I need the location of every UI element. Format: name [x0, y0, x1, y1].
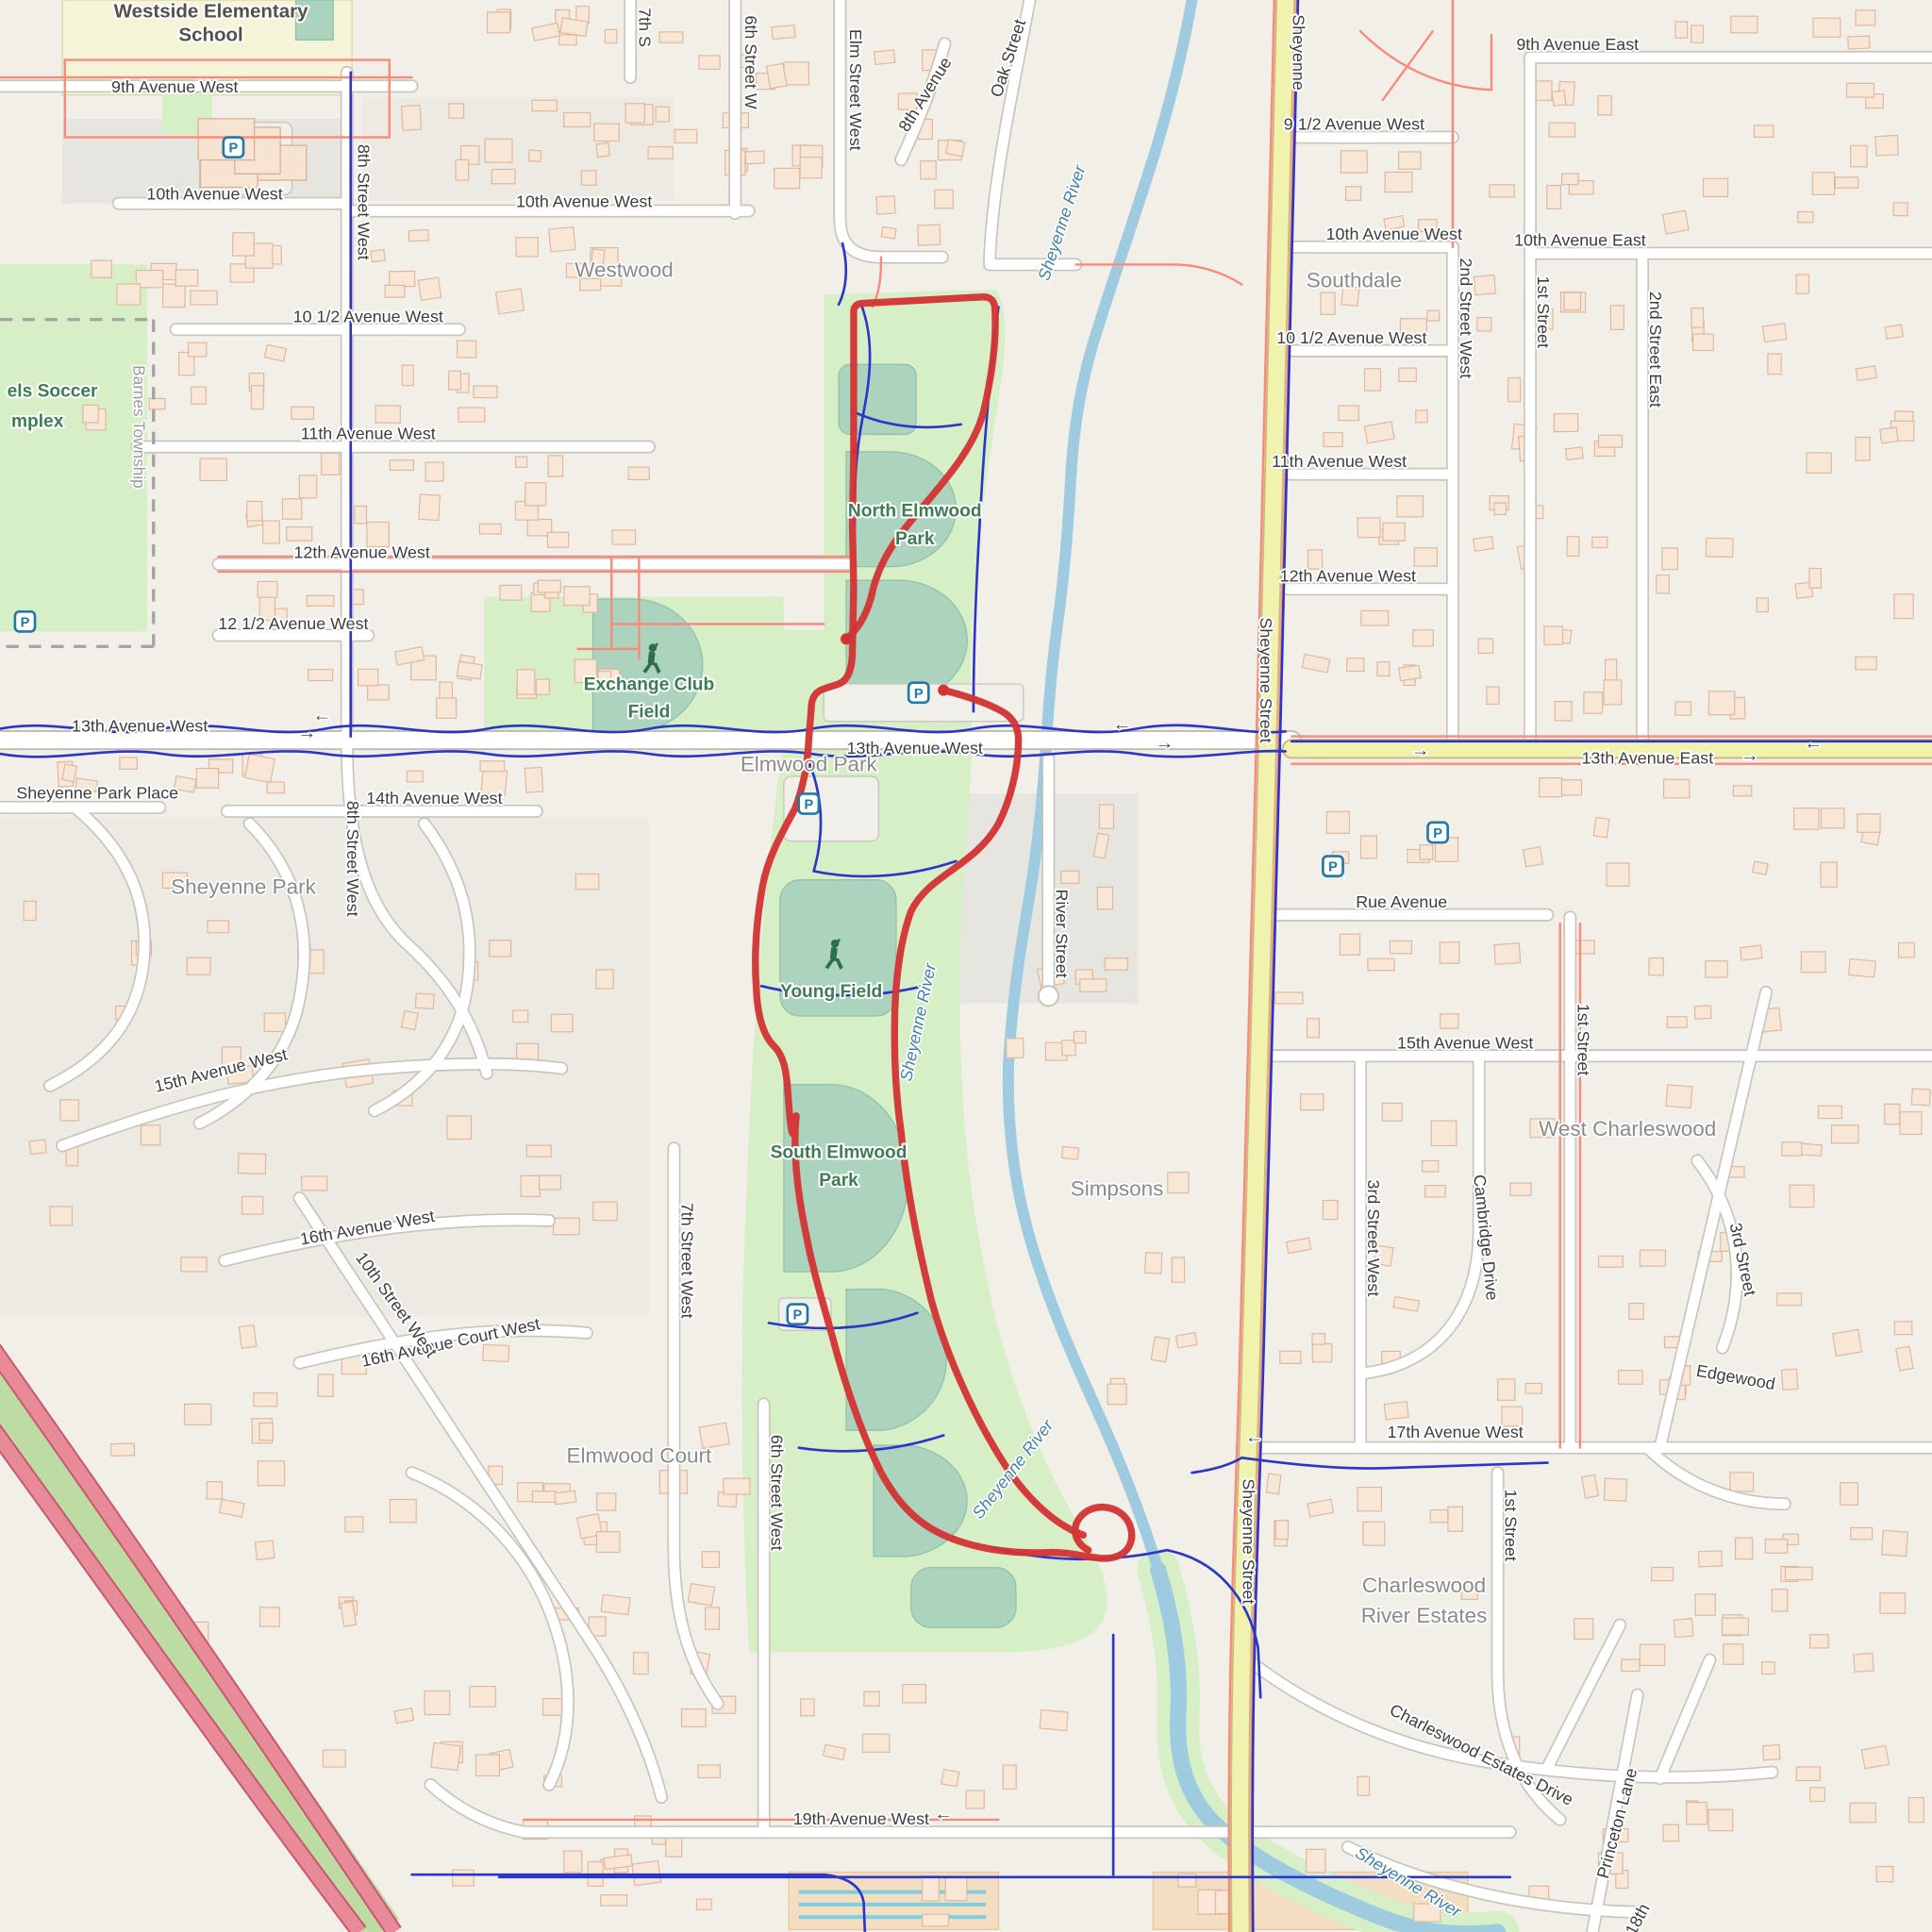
street-label: 7th Street West — [677, 1203, 696, 1319]
street-label: 10th Avenue East — [1514, 231, 1646, 250]
oneway-arrow-icon: → — [1740, 745, 1759, 766]
oneway-arrow-icon: → — [1411, 741, 1430, 761]
street-label: 10 1/2 Avenue West — [1276, 328, 1426, 347]
street-label: 15th Avenue West — [1397, 1033, 1533, 1052]
neighborhood-label: River Estates — [1361, 1604, 1488, 1627]
parking-icon: P — [224, 138, 243, 158]
park-label: Park — [819, 1171, 858, 1191]
school-label: School — [178, 25, 242, 46]
parking-icon: P — [908, 683, 928, 703]
street-label: 12 1/2 Avenue West — [218, 614, 368, 633]
neighborhood-label: Elmwood Court — [567, 1444, 712, 1468]
street-label: 3rd Street West — [1364, 1180, 1383, 1297]
school-label: Westside Elementary — [114, 1, 308, 23]
park-label: Young Field — [780, 982, 882, 1002]
parking-icon: P — [1323, 857, 1342, 876]
parking-icon: P — [799, 793, 819, 813]
park-label: mplex — [11, 411, 64, 431]
street-label: 6th Street West — [768, 1435, 787, 1551]
svg-text:P: P — [914, 687, 924, 702]
park-label: Park — [895, 529, 935, 549]
neighborhood-label: Southdale — [1307, 268, 1402, 291]
oneway-arrow-icon: ← — [934, 1804, 953, 1824]
street-label: 14th Avenue West — [366, 789, 502, 808]
street-label: 1st Street — [1502, 1489, 1521, 1560]
neighborhood-label: Westwood — [575, 258, 674, 282]
svg-text:P: P — [1433, 826, 1442, 841]
street-label: 6th Street W — [741, 16, 760, 109]
oneway-arrow-icon: → — [1155, 733, 1174, 754]
street-label: 10 1/2 Avenue West — [293, 307, 443, 325]
svg-text:P: P — [1328, 860, 1338, 875]
street-label: Sheyenne — [1290, 14, 1308, 91]
street-label: 1st Street — [1534, 276, 1553, 348]
street-label: 2nd Street West — [1457, 258, 1475, 378]
oneway-arrow-icon: ← — [1804, 733, 1823, 754]
street-label: 10th Avenue West — [1326, 225, 1462, 243]
street-label: 10th Avenue West — [516, 192, 652, 211]
street-label: Sheyenne Street — [1240, 1478, 1258, 1604]
svg-text:P: P — [804, 798, 813, 813]
street-label: 9th Avenue West — [111, 77, 238, 96]
svg-text:P: P — [793, 1308, 803, 1324]
park-label: North Elmwood — [848, 502, 982, 522]
neighborhood-label: Simpsons — [1071, 1176, 1164, 1200]
street-label: 9th Avenue East — [1516, 35, 1639, 54]
street-label: 12th Avenue West — [294, 542, 430, 561]
neighborhood-label: West Charleswood — [1539, 1117, 1716, 1141]
neighborhood-label: Elmwood Park — [741, 753, 878, 776]
street-label: 2nd Street East — [1646, 291, 1665, 408]
route-endpoint-dot — [938, 685, 949, 696]
park-label: els Soccer — [8, 382, 98, 402]
street-label: 8th Street West — [355, 144, 374, 260]
street-label: River Street — [1052, 889, 1071, 977]
park-label: South Elmwood — [771, 1143, 908, 1163]
street-label: Rue Avenue — [1356, 892, 1447, 911]
street-label: Sheyenne Park Place — [16, 784, 178, 803]
street-label: 17th Avenue West — [1387, 1423, 1523, 1441]
oneway-arrow-icon: → — [298, 723, 317, 743]
parking-icon: P — [788, 1305, 808, 1324]
street-label: 10th Avenue West — [146, 185, 282, 204]
map-canvas[interactable]: PPPPPPP ←→←→→→←←← 9th Avenue West10th Av… — [0, 0, 1932, 1932]
svg-text:P: P — [229, 142, 239, 157]
parking-icon: P — [15, 611, 35, 631]
street-label: 7th S — [635, 8, 654, 47]
street-label: 19th Avenue West — [793, 1809, 929, 1828]
svg-text:P: P — [21, 615, 30, 630]
street-label: 11th Avenue West — [301, 425, 436, 443]
oneway-arrow-icon: ← — [1112, 714, 1131, 735]
neighborhood-label: Charleswood — [1362, 1574, 1486, 1597]
street-label: 11th Avenue West — [1272, 452, 1407, 471]
park-label: Exchange Club — [584, 675, 715, 695]
street-label: 9 1/2 Avenue West — [1284, 115, 1424, 134]
street-label: Elm Street West — [846, 29, 865, 151]
neighborhood-label: Sheyenne Park — [171, 874, 317, 898]
street-label: 8th Street West — [343, 801, 362, 917]
street-label: 13th Avenue East — [1582, 749, 1714, 768]
route-endpoint-dot — [841, 633, 852, 644]
parking-icon: P — [1428, 823, 1448, 842]
park-label: Field — [628, 703, 671, 723]
street-label: Sheyenne Street — [1257, 618, 1275, 743]
street-label: 12th Avenue West — [1280, 567, 1416, 586]
street-label: 13th Avenue West — [72, 716, 208, 735]
boundary-label: Barnes Township — [130, 365, 149, 489]
street-label: 1st Street — [1574, 1004, 1592, 1075]
oneway-arrow-icon: ← — [1245, 1426, 1264, 1447]
